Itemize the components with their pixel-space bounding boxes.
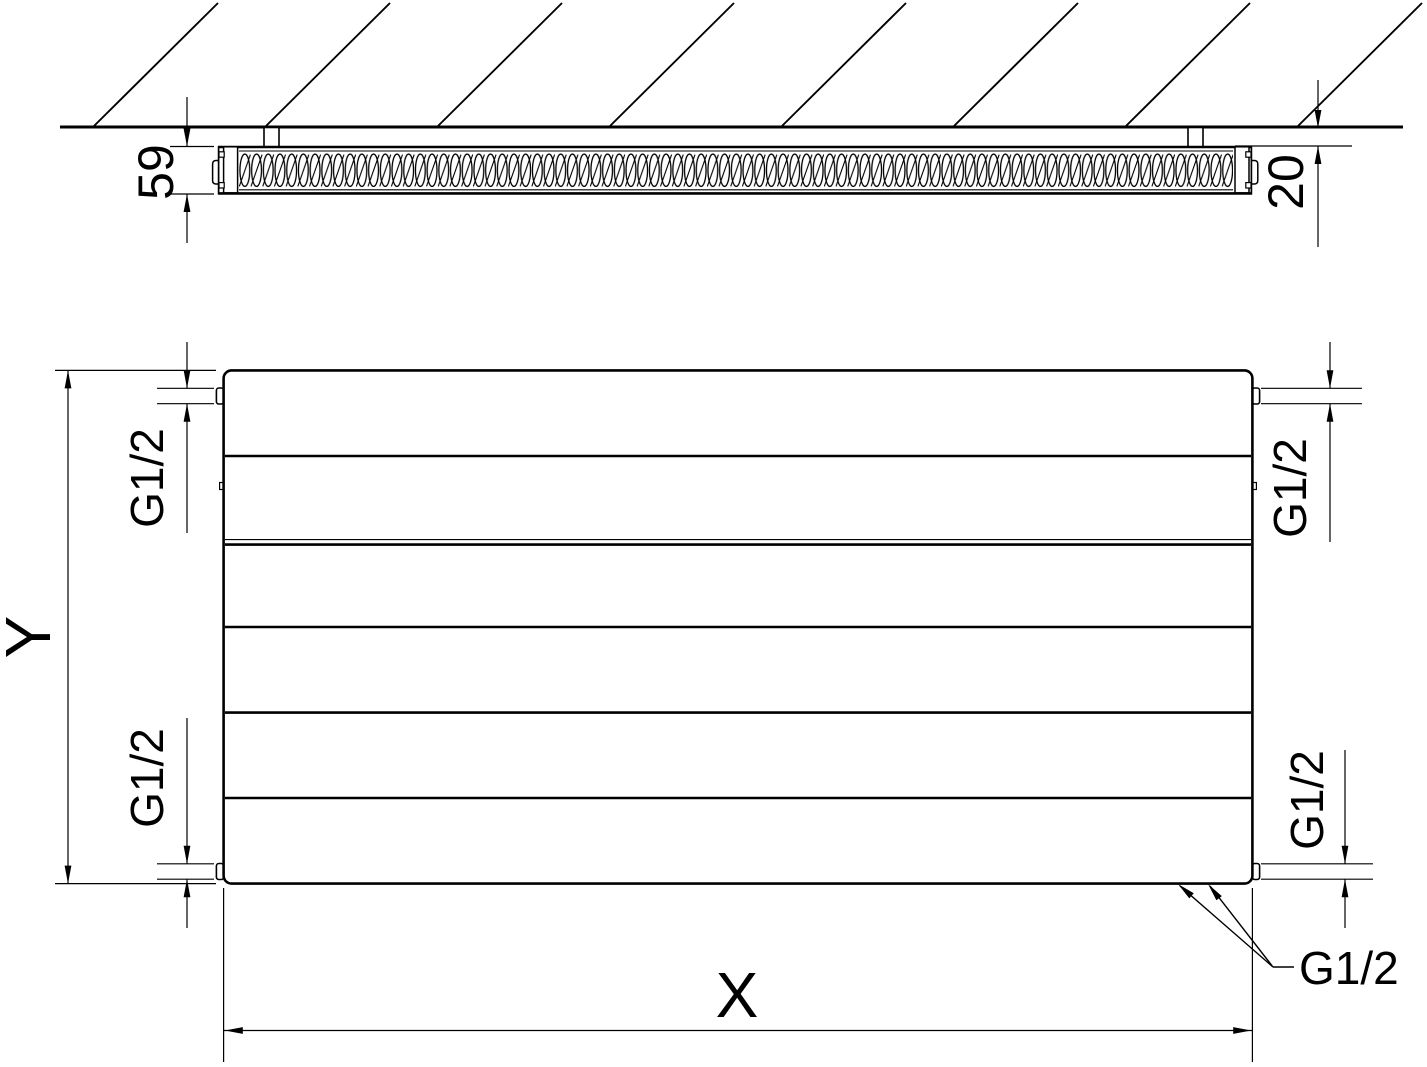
hatch-line [266,3,390,126]
arrowhead-up-icon [184,879,191,897]
arrowhead-down-icon [1342,846,1349,864]
leader-bottom-connections: G1/2 [1178,884,1399,994]
end-cap-right-tab [1246,152,1251,157]
arrowhead-up-icon [1315,146,1322,164]
connection-label-top-left: G1/2 [121,428,173,528]
wall-hatching [94,3,1422,126]
arrowhead-down-icon [184,370,191,388]
arrowhead-up-icon [1342,879,1349,897]
hatch-line [438,3,562,126]
radiator-front-view [216,370,1259,883]
hatch-line [954,3,1078,126]
leader-line [1210,886,1273,967]
height-label: Y [0,616,64,659]
radiator-technical-drawing: 59 20 [0,0,1427,1067]
end-cap-left [213,146,238,194]
arrowhead-up-icon [1327,404,1334,422]
end-cap-left-tab [219,152,224,157]
leader-line [1180,886,1273,967]
arrowhead-left-icon [225,1027,243,1034]
end-cap-left-tab [219,183,224,188]
dimension-depth: 59 [128,97,214,243]
arrowhead-down-icon [184,129,191,147]
end-cap-right [1235,146,1258,194]
connection-label-bottom-left: G1/2 [121,728,173,828]
arrowhead-up-icon [65,370,72,388]
arrowhead-up-icon [184,194,191,212]
wall-section [60,3,1422,127]
arrowhead-down-icon [1327,370,1334,388]
end-cap-right-tab [1246,183,1251,188]
arrowhead-down-icon [65,866,72,884]
radiator-side-view [213,128,1258,195]
hatch-line [1298,3,1422,126]
hatch-line [610,3,734,126]
hatch-line [782,3,906,126]
mounting-bracket-left [264,128,279,148]
hatch-line [94,3,218,126]
dimension-height: Y [0,370,216,883]
dimension-width: X [224,888,1253,1062]
connection-leader-label: G1/2 [1299,942,1399,994]
mounting-bracket-right [1188,128,1203,148]
connection-label-bottom-right: G1/2 [1281,750,1333,850]
end-cap-right-bump [1251,161,1257,185]
hatch-line [1126,3,1250,126]
wall-clearance-label: 20 [1258,154,1314,210]
width-label: X [716,959,759,1031]
convector-fins [239,152,1233,189]
dimension-connection-bottom-left: G1/2 [121,718,214,928]
arrowhead-down-icon [1315,110,1322,128]
arrowhead-up-icon [184,404,191,422]
arrowhead-down-icon [184,846,191,864]
arrowhead-right-icon [1233,1027,1251,1034]
dimension-connection-top-right: G1/2 [1261,342,1362,542]
connection-label-top-right: G1/2 [1264,438,1316,538]
drawing-canvas: 59 20 [0,0,1427,1067]
dimension-connection-bottom-right: G1/2 [1261,750,1373,928]
end-cap-left-plate [224,147,238,193]
depth-label: 59 [128,144,184,200]
